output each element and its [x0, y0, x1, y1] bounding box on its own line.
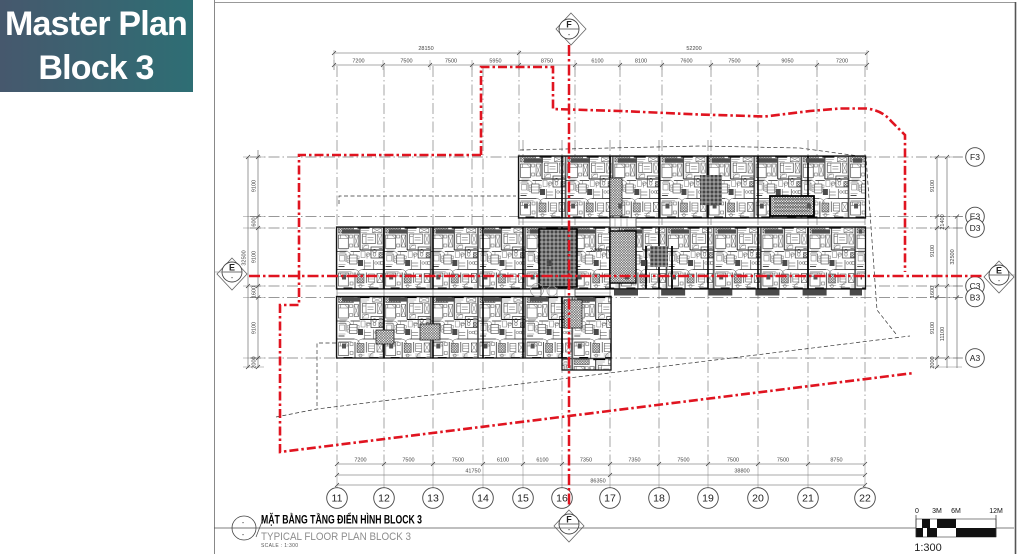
- svg-text:1600: 1600: [252, 286, 258, 298]
- svg-text:Block 3: Block 3: [38, 49, 153, 87]
- svg-text:32500: 32500: [950, 249, 956, 264]
- svg-text:52200: 52200: [686, 46, 701, 52]
- svg-text:2000: 2000: [252, 356, 258, 368]
- svg-text:SCALE : 1:300: SCALE : 1:300: [261, 543, 298, 549]
- svg-text:A3: A3: [970, 353, 981, 363]
- svg-text:18: 18: [653, 493, 665, 505]
- svg-text:38800: 38800: [734, 469, 749, 475]
- svg-text:17: 17: [604, 493, 616, 505]
- svg-text:7200: 7200: [354, 458, 366, 464]
- svg-text:6100: 6100: [591, 59, 603, 65]
- svg-text:14: 14: [477, 493, 489, 505]
- svg-text:7500: 7500: [677, 458, 689, 464]
- svg-text:86350: 86350: [590, 479, 605, 485]
- svg-text:8750: 8750: [830, 458, 842, 464]
- svg-text:F: F: [566, 20, 572, 30]
- svg-text:3M: 3M: [932, 508, 942, 515]
- svg-text:E: E: [229, 263, 235, 273]
- svg-text:22: 22: [859, 493, 871, 505]
- svg-text:11: 11: [332, 493, 343, 505]
- svg-text:7500: 7500: [727, 458, 739, 464]
- svg-text:7200: 7200: [836, 59, 848, 65]
- svg-text:9100: 9100: [930, 245, 936, 257]
- svg-text:41750: 41750: [465, 469, 480, 475]
- svg-text:2400: 2400: [590, 248, 602, 254]
- svg-text:12: 12: [378, 493, 390, 505]
- svg-text:7500: 7500: [445, 59, 457, 65]
- svg-text:7500: 7500: [402, 458, 414, 464]
- svg-text:19: 19: [702, 493, 714, 505]
- svg-text:MẶT BẰNG TẦNG ĐIỂN HÌNH BLOCK: MẶT BẰNG TẦNG ĐIỂN HÌNH BLOCK 3: [261, 514, 422, 527]
- svg-text:9100: 9100: [252, 251, 258, 263]
- svg-text:21400: 21400: [940, 214, 946, 229]
- svg-text:TYPICAL FLOOR PLAN BLOCK 3: TYPICAL FLOOR PLAN BLOCK 3: [261, 531, 411, 543]
- svg-text:8750: 8750: [541, 59, 553, 65]
- svg-text:16: 16: [556, 493, 568, 505]
- svg-text:0: 0: [915, 508, 919, 515]
- svg-text:6M: 6M: [951, 508, 961, 515]
- svg-text:9100: 9100: [252, 322, 258, 334]
- svg-text:9100: 9100: [930, 180, 936, 192]
- svg-text:7500: 7500: [400, 59, 412, 65]
- svg-text:11100: 11100: [940, 327, 946, 341]
- svg-text:20: 20: [752, 493, 764, 505]
- svg-text:28150: 28150: [418, 46, 433, 52]
- svg-text:6100: 6100: [497, 458, 509, 464]
- svg-text:13: 13: [427, 493, 439, 505]
- svg-text:D3: D3: [970, 223, 981, 233]
- svg-text:7500: 7500: [728, 59, 740, 65]
- svg-text:7500: 7500: [777, 458, 789, 464]
- svg-text:9100: 9100: [252, 180, 258, 192]
- svg-text:8100: 8100: [635, 59, 647, 65]
- svg-text:E: E: [996, 266, 1002, 276]
- svg-text:600: 600: [252, 217, 258, 226]
- svg-text:12M: 12M: [989, 508, 1003, 515]
- svg-text:6100: 6100: [536, 458, 548, 464]
- svg-text:F3: F3: [970, 152, 980, 162]
- svg-text:7350: 7350: [580, 458, 592, 464]
- svg-text:5950: 5950: [489, 59, 501, 65]
- svg-text:9100: 9100: [930, 322, 936, 334]
- svg-text:32500: 32500: [242, 250, 248, 265]
- svg-text:15: 15: [517, 493, 529, 505]
- svg-text:Master Plan: Master Plan: [5, 5, 187, 43]
- svg-text:21: 21: [802, 493, 814, 505]
- svg-text:2000: 2000: [930, 356, 936, 368]
- svg-text:7350: 7350: [628, 458, 640, 464]
- svg-text:9050: 9050: [781, 59, 793, 65]
- svg-text:1600: 1600: [930, 286, 936, 298]
- svg-text:F: F: [566, 515, 572, 525]
- svg-text:7600: 7600: [680, 59, 692, 65]
- svg-text:7500: 7500: [452, 458, 464, 464]
- svg-text:B3: B3: [970, 293, 981, 303]
- svg-text:7200: 7200: [352, 59, 364, 65]
- svg-text:1:300: 1:300: [914, 542, 942, 554]
